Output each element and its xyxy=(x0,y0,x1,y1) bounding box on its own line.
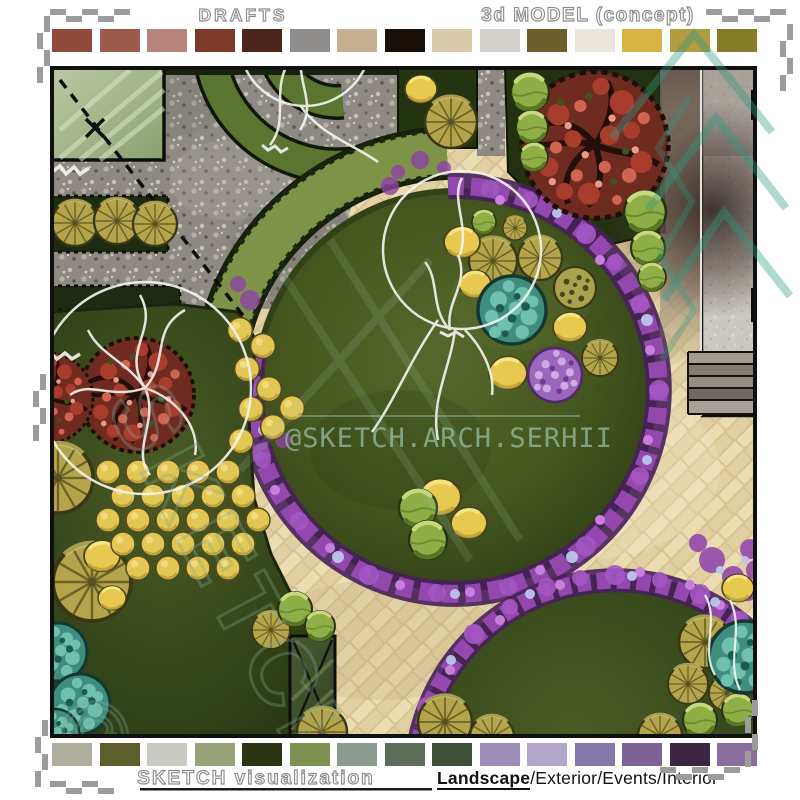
color-swatch xyxy=(622,29,662,52)
color-swatch xyxy=(480,743,520,766)
category-line: Landscape/Exterior/Events/Interior xyxy=(437,768,718,789)
color-swatch xyxy=(195,29,235,52)
color-swatch xyxy=(385,743,425,766)
color-swatch xyxy=(432,743,472,766)
watermark-handle-text: @SKETCH.ARCH.SERHII xyxy=(285,423,613,454)
color-swatch xyxy=(385,29,425,52)
color-swatch xyxy=(575,29,615,52)
color-swatch xyxy=(100,743,140,766)
color-swatch xyxy=(242,29,282,52)
drafts-color-palette xyxy=(52,29,757,52)
color-swatch xyxy=(195,743,235,766)
color-swatch xyxy=(100,29,140,52)
color-swatch xyxy=(717,743,757,766)
color-swatch xyxy=(242,743,282,766)
color-swatch xyxy=(480,29,520,52)
color-swatch xyxy=(337,29,377,52)
model-title: 3d MODEL (concept) xyxy=(481,5,695,26)
drafts-title: DRAFTS xyxy=(199,5,288,25)
color-swatch xyxy=(622,743,662,766)
color-swatch xyxy=(147,743,187,766)
color-swatch xyxy=(290,743,330,766)
color-swatch xyxy=(527,743,567,766)
stairs xyxy=(688,352,757,414)
garden-plan-illustration: @SKETCH.ARCH.SERHII SKETCH @ xyxy=(50,66,757,738)
landscape-presentation-sheet: @SKETCH.ARCH.SERHII SKETCH @ Landscape/E… xyxy=(0,0,800,800)
color-swatch xyxy=(527,29,567,52)
color-swatch xyxy=(147,29,187,52)
color-swatch xyxy=(670,29,710,52)
color-swatch xyxy=(290,29,330,52)
color-swatch xyxy=(575,743,615,766)
category-rest: /Exterior/Events/Interior xyxy=(530,768,718,788)
color-swatch xyxy=(670,743,710,766)
color-swatch xyxy=(337,743,377,766)
color-swatch xyxy=(432,29,472,52)
sketch-visualization-title: SKETCH visualization xyxy=(137,768,374,789)
color-swatch xyxy=(52,29,92,52)
color-swatch xyxy=(717,29,757,52)
category-landscape: Landscape xyxy=(437,768,530,790)
title-underline xyxy=(140,788,432,791)
sketch-color-palette xyxy=(52,743,757,766)
color-swatch xyxy=(52,743,92,766)
